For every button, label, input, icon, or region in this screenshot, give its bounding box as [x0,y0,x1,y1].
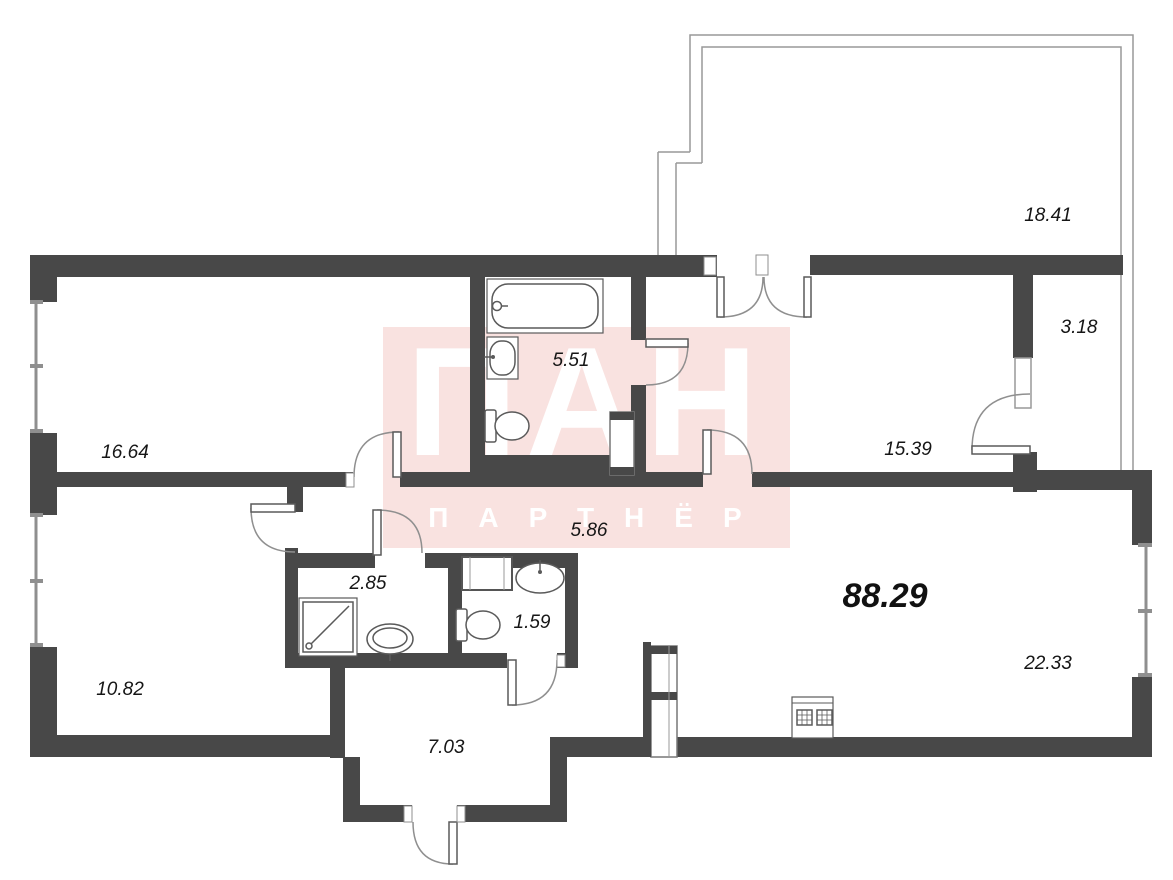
total-area-label: 88.29 [842,577,927,615]
shower-tray-icon [299,598,357,656]
bathroom-sink-icon [484,337,518,379]
room-label-bathroom: 5.51 [553,350,590,371]
room-label-room-bottom-left: 10.82 [96,679,144,700]
room-label-closet: 3.18 [1061,317,1098,338]
door-wc [508,660,557,705]
door-room-bottom-left [251,504,295,552]
window-room-bottom-left [30,513,43,647]
balcony-french-doors [717,277,811,317]
room-label-hallway: 7.03 [428,737,465,758]
room-label-wc: 1.59 [514,612,551,633]
room-label-shower-room: 2.85 [349,573,387,594]
bathroom-duct [610,412,634,475]
bathtub-icon [487,279,603,333]
room-label-corridor: 5.86 [571,520,608,541]
stove-icon [792,697,833,738]
room-label-bedroom-top-left: 16.64 [101,442,149,463]
floor-plan: ПАН ПАРТНЁР [0,0,1173,880]
wc-toilet-icon [456,609,500,641]
door-closet [972,358,1031,454]
window-bedroom-top-left [30,300,43,433]
window-living-kitchen [1138,543,1152,677]
entrance-door [413,822,457,864]
room-label-balcony: 18.41 [1024,205,1072,226]
floor-plan-page: ПАН ПАРТНЁР [0,0,1173,880]
wc-duct [462,557,512,590]
room-label-bedroom-right: 15.39 [884,439,932,460]
kitchen-duct [643,642,677,757]
door-bedroom-top-left [354,432,401,477]
bathroom-toilet-icon [485,410,529,442]
room-label-living-kitchen: 22.33 [1023,653,1072,674]
